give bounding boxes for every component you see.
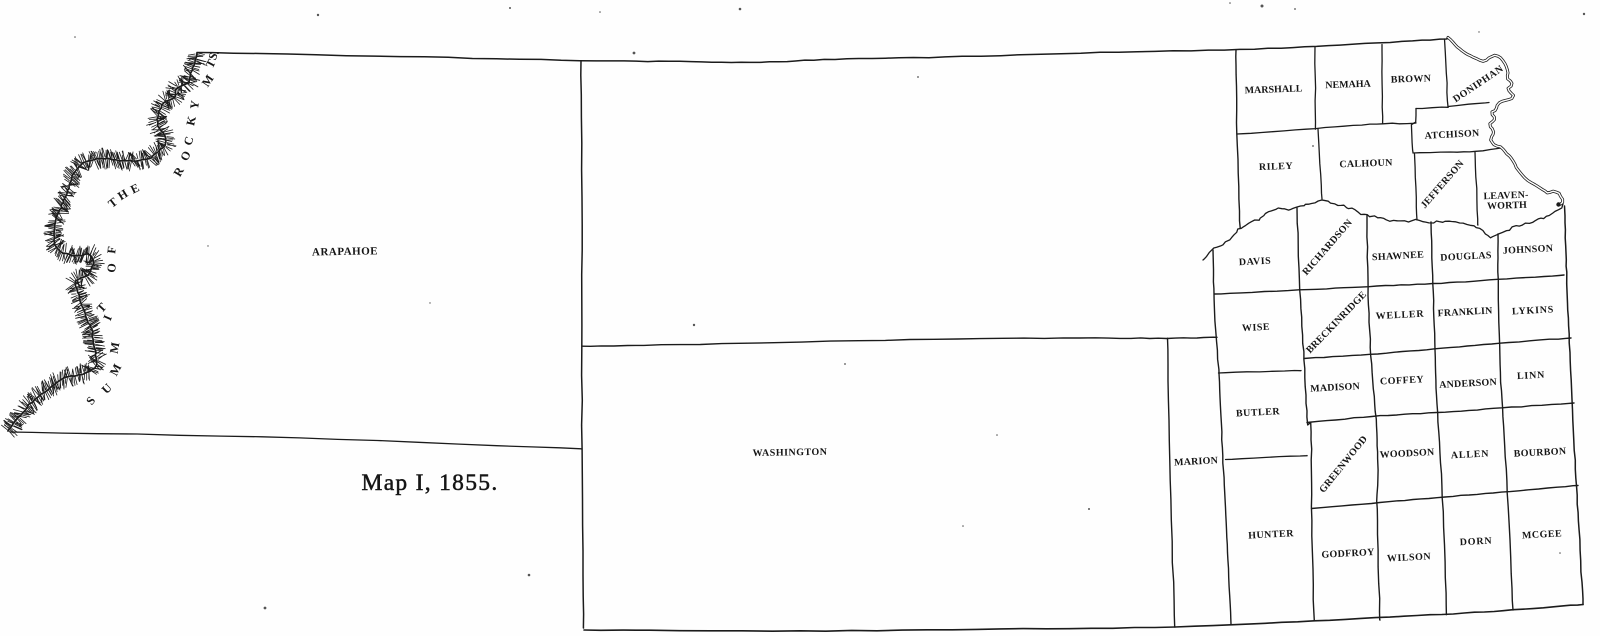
svg-text:ALLEN: ALLEN: [1451, 448, 1490, 461]
svg-text:F: F: [104, 246, 119, 255]
svg-text:RILEY: RILEY: [1259, 161, 1294, 173]
svg-text:DORN: DORN: [1459, 536, 1492, 549]
svg-text:BROWN: BROWN: [1391, 73, 1432, 85]
svg-text:M: M: [107, 341, 123, 355]
svg-text:ARAPAHOE: ARAPAHOE: [312, 245, 378, 258]
svg-text:O: O: [104, 263, 119, 274]
svg-text:WORTH: WORTH: [1487, 200, 1527, 212]
svg-text:NEMAHA: NEMAHA: [1325, 79, 1372, 92]
svg-text:MARION: MARION: [1174, 455, 1219, 468]
svg-text:MCGEE: MCGEE: [1522, 528, 1563, 541]
svg-text:LINN: LINN: [1517, 370, 1546, 382]
svg-text:CALHOUN: CALHOUN: [1339, 157, 1393, 170]
svg-text:WISE: WISE: [1242, 322, 1271, 334]
svg-text:WILSON: WILSON: [1387, 551, 1432, 564]
svg-text:COFFEY: COFFEY: [1380, 374, 1425, 387]
svg-text:MARSHALL: MARSHALL: [1244, 83, 1302, 96]
svg-text:DAVIS: DAVIS: [1239, 256, 1272, 269]
svg-text:LYKINS: LYKINS: [1512, 304, 1555, 317]
svg-text:BUTLER: BUTLER: [1236, 406, 1281, 419]
svg-text:Map I, 1855.: Map I, 1855.: [362, 470, 499, 496]
svg-text:WASHINGTON: WASHINGTON: [753, 447, 828, 459]
